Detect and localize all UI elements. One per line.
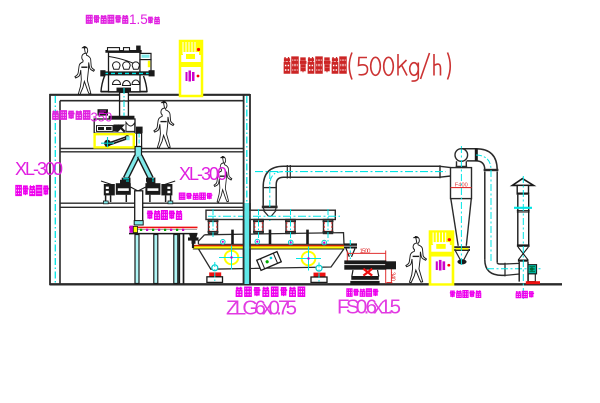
- svg-text:XL-300: XL-300: [179, 164, 227, 184]
- svg-text:350: 350: [91, 110, 113, 125]
- svg-text:ZLG6x0.75: ZLG6x0.75: [226, 297, 297, 320]
- svg-text:FS0.6x1.5: FS0.6x1.5: [337, 296, 401, 319]
- svg-text:XL-300: XL-300: [15, 159, 63, 179]
- svg-text:1.5: 1.5: [129, 12, 148, 27]
- svg-text:1500: 1500: [360, 249, 372, 255]
- svg-text:340: 340: [389, 272, 395, 282]
